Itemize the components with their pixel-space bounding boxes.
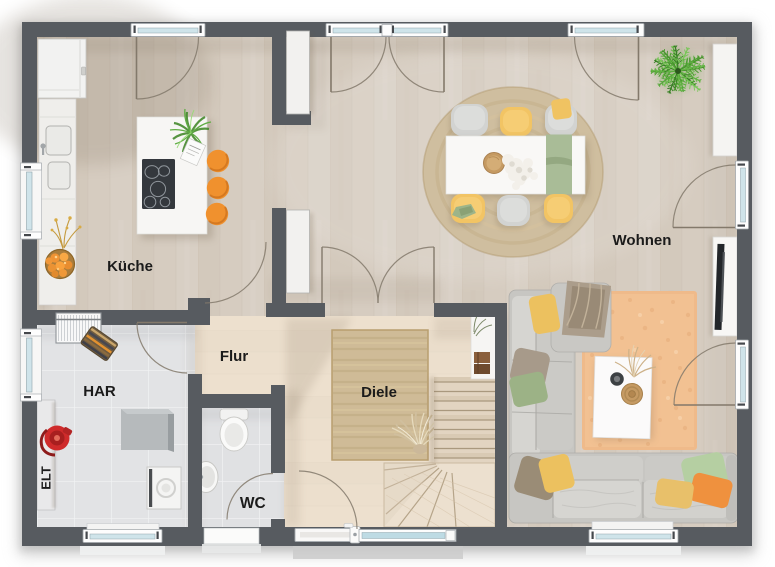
svg-text:ELT: ELT xyxy=(39,466,54,490)
svg-text:Küche: Küche xyxy=(107,258,153,275)
svg-text:Diele: Diele xyxy=(361,384,397,401)
svg-text:HAR: HAR xyxy=(83,383,116,400)
svg-text:Flur: Flur xyxy=(220,348,248,365)
svg-text:Wohnen: Wohnen xyxy=(613,232,672,249)
svg-text:WC: WC xyxy=(240,495,266,512)
